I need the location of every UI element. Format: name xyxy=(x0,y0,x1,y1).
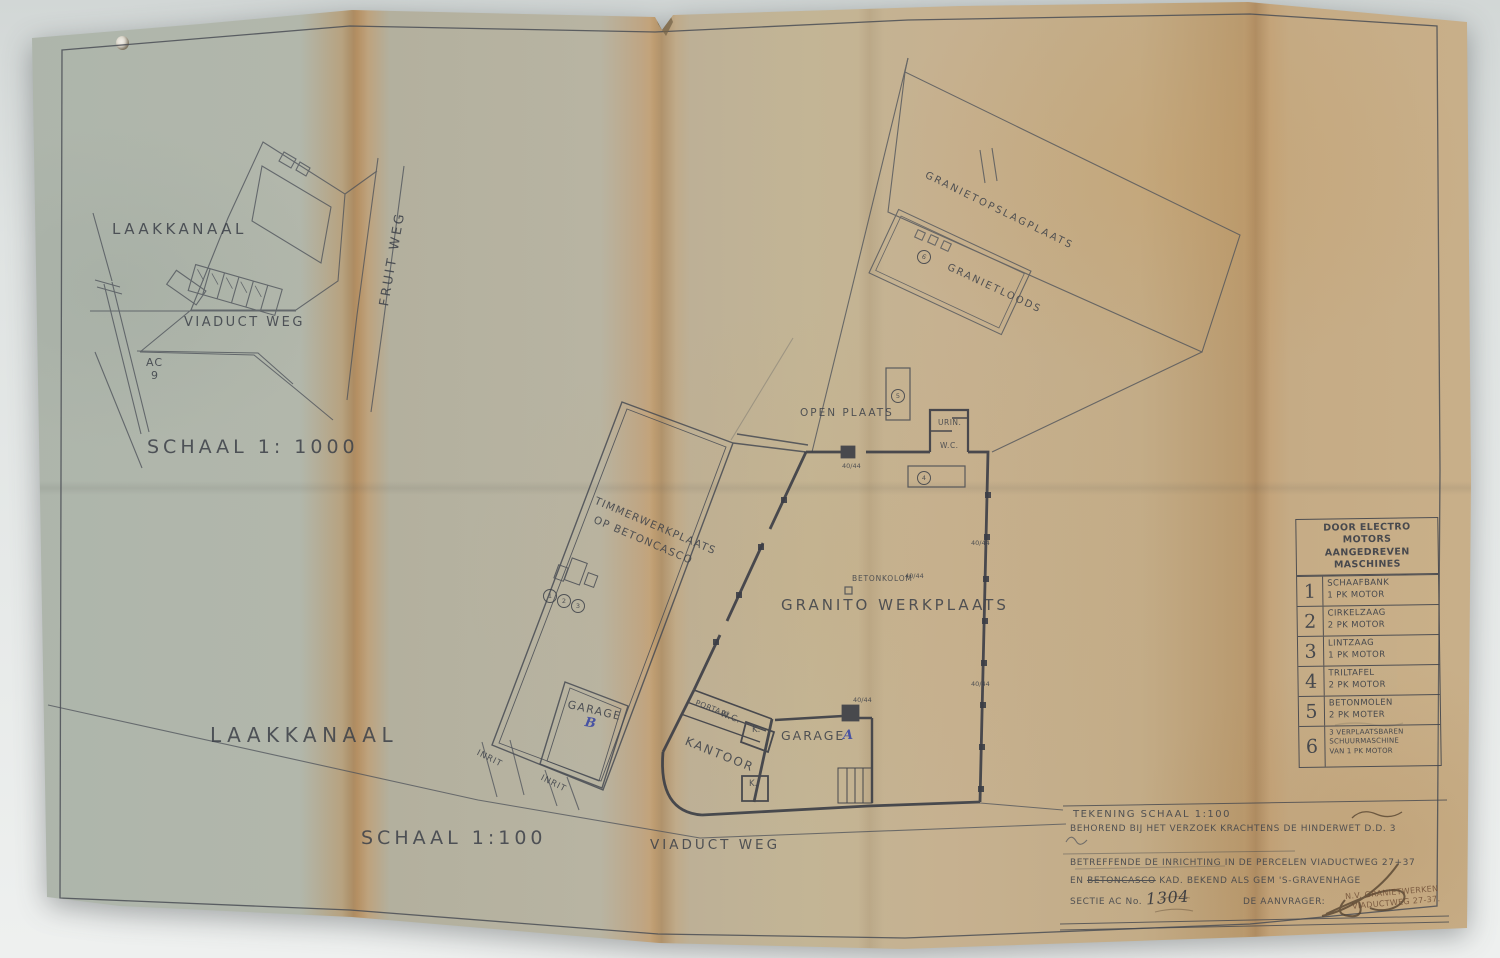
wall-dim-2: 40/44 xyxy=(853,697,872,704)
machine-mark-5: 5 xyxy=(891,389,905,403)
viaduct-weg-label: VIADUCT WEG xyxy=(650,838,780,853)
frame-border xyxy=(60,14,1440,938)
title-line-4-pre: EN xyxy=(1070,876,1084,886)
table-row: 2 CIRKELZAAG2 PK MOTOR xyxy=(1297,604,1438,636)
machine-table-title-line1: DOOR ELECTRO MOTORS xyxy=(1297,521,1436,548)
row-number: 5 xyxy=(1299,697,1325,726)
paper-shadow-wrap: LAAKKANAAL VIADUCT WEG FRUIT WEG AC 9 SC… xyxy=(0,0,1500,958)
inset-map-lines xyxy=(90,142,404,468)
inset-laakkanaal-label: LAAKKANAAL xyxy=(112,221,247,238)
machine-power: 2 PK MOTOR xyxy=(1329,679,1437,692)
inset-section-number: 9 xyxy=(151,370,158,382)
wall-dim-1: 40/44 xyxy=(842,463,861,470)
sectie-label: SECTIE AC No. xyxy=(1070,897,1142,907)
machine-table-title-line2: AANGEDREVEN MASCHINES xyxy=(1298,546,1437,573)
betonkolom-dim: 40/44 xyxy=(905,573,924,580)
machine-mark-4: 4 xyxy=(917,471,931,485)
title-line-4-struck: BETONCASCO xyxy=(1087,876,1156,886)
drawing-linework xyxy=(0,0,1500,958)
row-number: 4 xyxy=(1298,667,1324,696)
kast-lower-label: K. xyxy=(749,780,757,789)
title-line-4: EN BETONCASCO KAD. BEKEND ALS GEM 'S-GRA… xyxy=(1070,876,1361,886)
row-number: 3 xyxy=(1298,637,1324,666)
northeast-parcel-lines xyxy=(731,58,1240,452)
garage-a-letter: A xyxy=(843,729,853,743)
machine-power: 1 PK MOTOR xyxy=(1327,589,1435,602)
urinoir-label: URIN. xyxy=(938,419,961,427)
machine-table-title: DOOR ELECTRO MOTORS AANGEDREVEN MASCHINE… xyxy=(1296,518,1438,576)
garage-a-label: GARAGE xyxy=(781,729,845,743)
kast-upper-label: K. xyxy=(752,726,760,735)
wc-north-label: W.C. xyxy=(940,442,959,450)
table-row: 6 3 VERPLAATSBARENSCHUURMASCHINEVAN 1 PK… xyxy=(1299,724,1441,767)
title-line-3: BETREFFENDE DE INRICHTING IN DE PERCELEN… xyxy=(1070,858,1415,868)
machine-power: 2 PK MOTER xyxy=(1329,709,1437,722)
machine-mark-1: 1 xyxy=(543,589,557,603)
laakkanaal-label: LAAKKANAAL xyxy=(210,724,398,746)
aanvrager-label: DE AANVRAGER: xyxy=(1243,897,1325,907)
table-row: 5 BETONMOLEN2 PK MOTER xyxy=(1299,694,1440,726)
machine-power: VAN 1 PK MOTOR xyxy=(1329,746,1437,757)
title-line-2: BEHOREND BIJ HET VERZOEK KRACHTENS DE HI… xyxy=(1070,824,1396,834)
betonkolom-label: BETONKOLOM xyxy=(852,575,913,583)
timmerwerkplaats-outline xyxy=(492,402,808,790)
title-line-1: TEKENING SCHAAL 1:100 xyxy=(1073,809,1231,820)
table-row: 4 TRILTAFEL2 PK MOTOR xyxy=(1298,664,1439,696)
machine-mark-2: 2 xyxy=(557,594,571,608)
inset-section-code: AC xyxy=(146,357,163,369)
sectie-number-handwritten: 1304 xyxy=(1145,887,1189,909)
wall-dim-3: 40/44 xyxy=(971,540,990,547)
garage-b-outline xyxy=(540,682,628,788)
machine-power: 1 PK MOTOR xyxy=(1328,649,1436,662)
machine-power: 2 PK MOTOR xyxy=(1328,619,1436,632)
blueprint-paper: LAAKKANAAL VIADUCT WEG FRUIT WEG AC 9 SC… xyxy=(0,0,1500,958)
table-row: 3 LINTZAAG1 PK MOTOR xyxy=(1298,634,1439,666)
row-number: 2 xyxy=(1297,607,1323,636)
table-row: 1 SCHAAFBANK1 PK MOTOR xyxy=(1297,574,1438,606)
open-plaats-items xyxy=(845,368,965,594)
row-number: 6 xyxy=(1299,727,1326,767)
machine-table: DOOR ELECTRO MOTORS AANGEDREVEN MASCHINE… xyxy=(1295,517,1441,768)
wall-dim-4: 40/44 xyxy=(971,681,990,688)
open-plaats-label: OPEN PLAATS xyxy=(800,408,894,420)
plan-scale-label: SCHAAL 1:100 xyxy=(361,828,547,849)
inset-viaduct-weg-label: VIADUCT WEG xyxy=(184,316,305,330)
title-line-4-post: KAD. BEKEND ALS GEM 'S-GRAVENHAGE xyxy=(1159,876,1361,886)
machine-mark-3: 3 xyxy=(571,599,585,613)
inset-scale-label: SCHAAL 1: 1000 xyxy=(147,437,359,458)
row-number: 1 xyxy=(1297,577,1323,606)
granito-werkplaats-label: GRANITO WERKPLAATS xyxy=(781,597,1009,614)
